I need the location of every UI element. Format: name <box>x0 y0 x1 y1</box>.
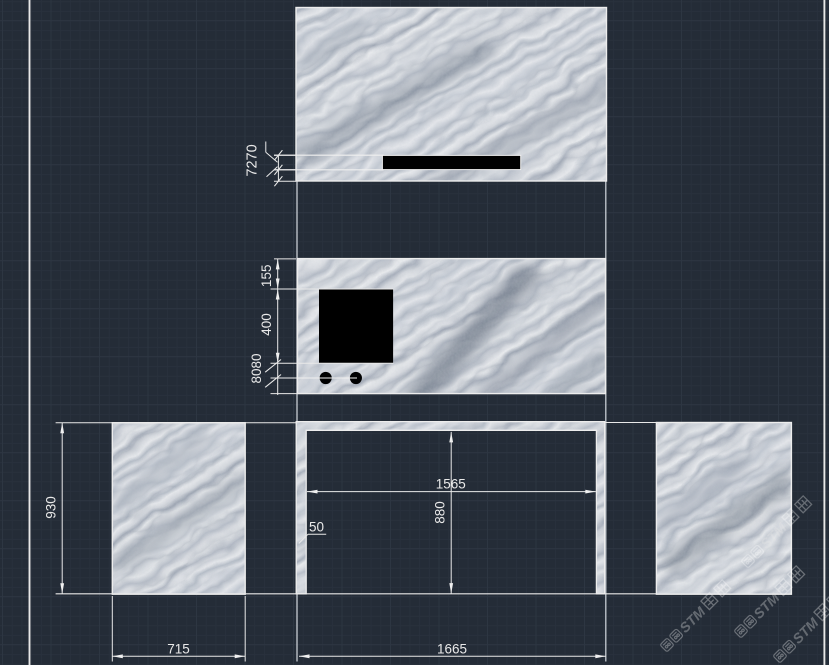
svg-text:715: 715 <box>167 642 190 657</box>
svg-text:880: 880 <box>433 501 448 524</box>
svg-text:50: 50 <box>309 520 324 535</box>
svg-text:7270: 7270 <box>245 144 261 176</box>
svg-text:155: 155 <box>259 265 274 288</box>
svg-text:400: 400 <box>259 313 274 336</box>
svg-text:930: 930 <box>44 496 59 519</box>
svg-text:8080: 8080 <box>249 353 264 383</box>
svg-text:1665: 1665 <box>437 642 467 657</box>
